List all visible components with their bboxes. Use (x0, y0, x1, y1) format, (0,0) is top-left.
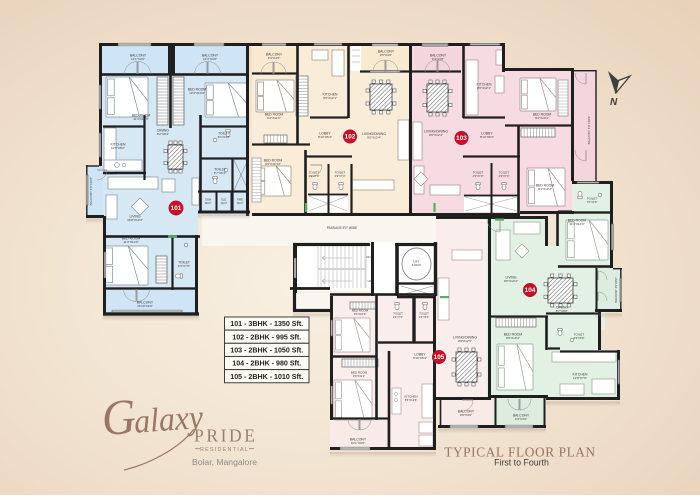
svg-text:TOILET: TOILET (335, 170, 346, 174)
svg-text:ELE.: ELE. (221, 197, 227, 201)
svg-text:TOILET: TOILET (499, 170, 510, 174)
svg-text:6'10"X6'4": 6'10"X6'4" (413, 356, 427, 360)
svg-text:FIRE: FIRE (237, 197, 243, 201)
svg-text:TOILET: TOILET (587, 196, 598, 200)
svg-text:9'4"X12'10": 9'4"X12'10" (265, 162, 281, 166)
svg-text:9'0"X12'4": 9'0"X12'4" (367, 136, 381, 140)
svg-text:DUCT: DUCT (237, 202, 244, 205)
svg-text:4'9"X7'0": 4'9"X7'0" (473, 174, 484, 178)
svg-text:4'9"X6'0": 4'9"X6'0" (419, 315, 429, 319)
svg-text:8'10"X6'4": 8'10"X6'4" (318, 135, 332, 139)
svg-text:13'3"X4'6": 13'3"X4'6" (203, 57, 217, 61)
svg-text:KITCHEN: KITCHEN (404, 394, 417, 398)
svg-text:10'1"X4'6": 10'1"X4'6" (351, 441, 365, 445)
svg-text:9'4"X11'0": 9'4"X11'0" (267, 116, 281, 120)
svg-text:DN: DN (367, 255, 371, 259)
svg-text:9'0"X10'4": 9'0"X10'4" (504, 279, 518, 283)
svg-text:12'8"X7'9": 12'8"X7'9" (573, 376, 587, 380)
svg-text:8'2"X8'4": 8'2"X8'4" (157, 132, 169, 136)
svg-text:4'9"X7'0": 4'9"X7'0" (499, 174, 510, 178)
svg-text:4'9"X7'0": 4'9"X7'0" (309, 174, 320, 178)
svg-text:9'6"X12'5": 9'6"X12'5" (458, 339, 472, 343)
svg-text:DUCT: DUCT (221, 202, 228, 205)
svg-text:9'9"X4'6": 9'9"X4'6" (460, 413, 472, 417)
svg-text:8 PACK: 8 PACK (412, 263, 421, 267)
svg-text:9'4"X10'1": 9'4"X10'1" (535, 116, 549, 120)
svg-text:9'3"X4'6": 9'3"X4'6" (432, 57, 444, 61)
svg-text:BALCONY 4'9"X8'0": BALCONY 4'9"X8'0" (614, 277, 618, 302)
svg-text:103: 103 (456, 135, 467, 142)
svg-text:105: 105 (434, 354, 445, 361)
svg-text:103 - 2BHK - 1050 Sft.: 103 - 2BHK - 1050 Sft. (230, 346, 303, 354)
svg-text:4'9"X7'0": 4'9"X7'0" (335, 174, 346, 178)
svg-text:LIFT: LIFT (414, 259, 420, 263)
svg-text:RESIDENTIAL: RESIDENTIAL (200, 447, 249, 453)
svg-text:TOILET: TOILET (393, 311, 403, 315)
svg-text:7'0"X4'6": 7'0"X4'6" (587, 200, 598, 204)
svg-text:8'7"X8'0": 8'7"X8'0" (556, 309, 568, 313)
svg-text:12'5"X8'0": 12'5"X8'0" (111, 146, 125, 150)
svg-text:8'6"X12'1": 8'6"X12'1" (477, 86, 491, 90)
svg-text:104: 104 (525, 287, 536, 294)
svg-text:101 - 3BHK - 1350 Sft.: 101 - 3BHK - 1350 Sft. (230, 320, 303, 328)
svg-text:101: 101 (171, 205, 182, 212)
svg-text:105 - 2BHK - 1010 Sft.: 105 - 2BHK - 1010 Sft. (230, 373, 303, 381)
svg-text:102: 102 (345, 134, 356, 141)
svg-text:TOILET: TOILET (574, 332, 585, 336)
svg-text:4'9"X6'8": 4'9"X6'8" (574, 336, 585, 340)
svg-text:9'4"X10'2": 9'4"X10'2" (538, 187, 552, 191)
svg-text:BED ROOM: BED ROOM (351, 370, 368, 374)
svg-text:11'4"X10'0": 11'4"X10'0" (133, 117, 149, 121)
svg-text:UP: UP (368, 279, 372, 283)
svg-text:104 - 2BHK - 980 Sft.: 104 - 2BHK - 980 Sft. (232, 360, 301, 368)
svg-text:8'6"X12'6": 8'6"X12'6" (405, 398, 418, 402)
svg-text:BED ROOM: BED ROOM (352, 308, 369, 312)
svg-text:TOILET: TOILET (309, 170, 320, 174)
svg-text:BALCONY 4'9"X10'9": BALCONY 4'9"X10'9" (587, 116, 591, 145)
svg-text:Bolar, Mangalore: Bolar, Mangalore (192, 457, 257, 467)
svg-text:8'1"X4'6": 8'1"X4'6" (218, 135, 230, 139)
svg-text:DUCT: DUCT (205, 202, 212, 205)
svg-text:102 - 2BHK - 995 Sft.: 102 - 2BHK - 995 Sft. (232, 333, 301, 341)
svg-text:9'4"X4'6": 9'4"X4'6" (268, 56, 280, 60)
svg-text:N: N (610, 97, 618, 108)
svg-text:5'7"X6'4": 5'7"X6'4" (214, 171, 226, 175)
svg-text:11'4"X10'0": 11'4"X10'0" (569, 222, 585, 226)
svg-text:PASSAGE 5'0" WIDE: PASSAGE 5'0" WIDE (327, 226, 357, 230)
svg-text:9'6"X12'4": 9'6"X12'4" (429, 133, 443, 137)
svg-text:11'3"X10'0": 11'3"X10'0" (123, 240, 139, 244)
svg-text:9'5"X4'6": 9'5"X4'6" (380, 53, 392, 57)
svg-text:4'9"X7'0": 4'9"X7'0" (393, 315, 403, 319)
svg-text:9'6"X12'1": 9'6"X12'1" (323, 96, 337, 100)
svg-text:16'8"X10'3": 16'8"X10'3" (127, 218, 143, 222)
svg-text:16'10"X4'6": 16'10"X4'6" (137, 304, 153, 308)
svg-text:12'1"X4'6": 12'1"X4'6" (131, 57, 145, 61)
svg-text:DOM: DOM (205, 197, 211, 201)
svg-text:9'4"X11'1": 9'4"X11'1" (353, 374, 365, 378)
svg-text:9'9"X10'4": 9'9"X10'4" (506, 336, 520, 340)
svg-text:9'4"X10'0": 9'4"X10'0" (354, 312, 367, 316)
svg-text:BALCONY 4'9"X10'0": BALCONY 4'9"X10'0" (89, 177, 93, 206)
svg-text:PRIDE: PRIDE (194, 426, 258, 446)
svg-text:8'10"X6'4": 8'10"X6'4" (480, 135, 494, 139)
svg-text:First to Fourth: First to Fourth (494, 458, 549, 468)
svg-text:13'3"X10'0": 13'3"X10'0" (189, 91, 205, 95)
svg-text:4'9"X7'6": 4'9"X7'6" (178, 264, 190, 268)
svg-text:TOILET: TOILET (473, 170, 484, 174)
svg-text:9'4"X4'6": 9'4"X4'6" (515, 417, 527, 421)
svg-text:TOILET: TOILET (419, 311, 429, 315)
